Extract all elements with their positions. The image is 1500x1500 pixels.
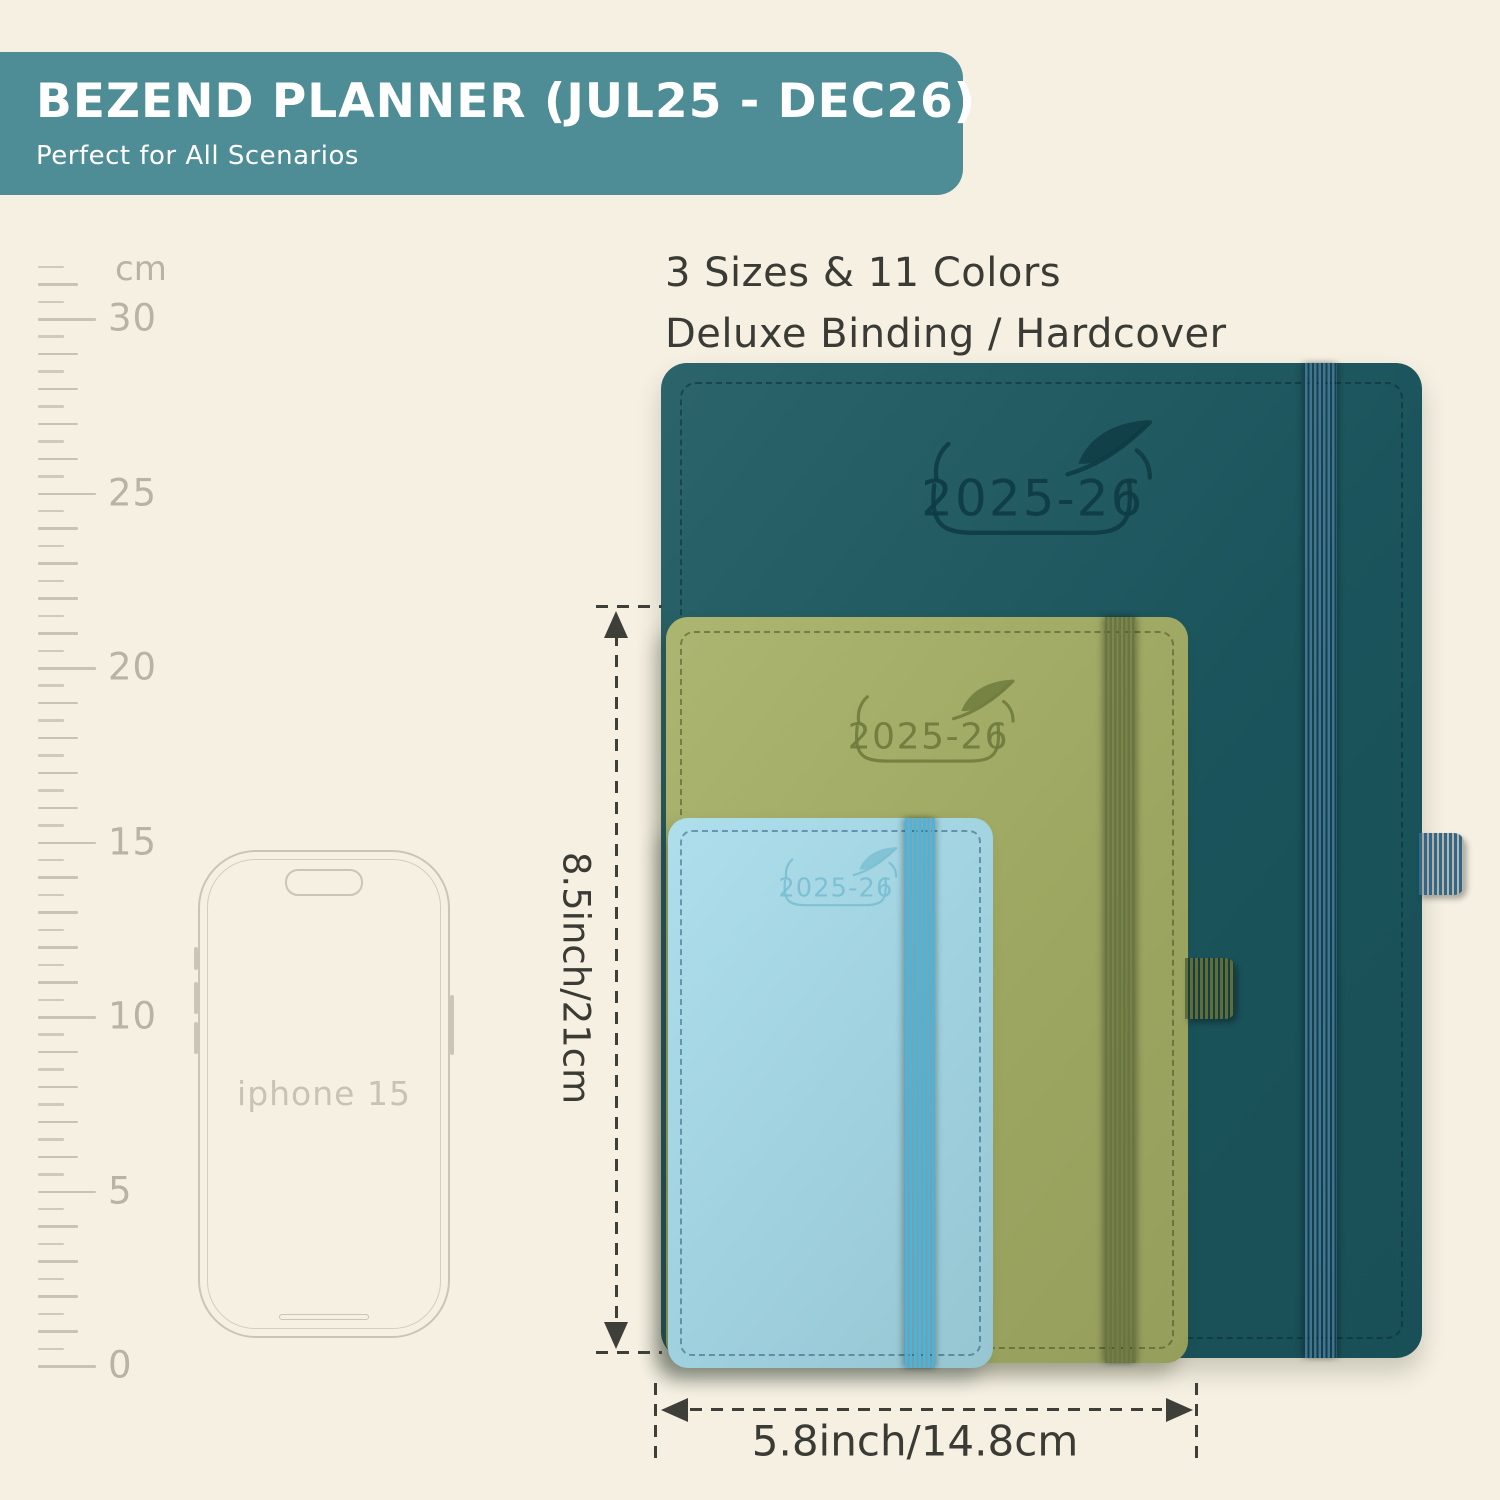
ruler-tick bbox=[38, 423, 78, 426]
ruler-tick bbox=[38, 1121, 78, 1124]
ruler-tick bbox=[38, 1051, 78, 1054]
year-logo: 2025-26 bbox=[770, 846, 904, 913]
pen-loop bbox=[1419, 833, 1464, 895]
width-dim-label: 5.8inch/14.8cm bbox=[752, 1417, 1078, 1466]
ruler-tick bbox=[38, 1278, 64, 1281]
pen-loop bbox=[1185, 958, 1235, 1019]
ruler-tick bbox=[38, 754, 64, 757]
ruler-tick bbox=[38, 632, 78, 635]
ruler-tick bbox=[38, 545, 64, 548]
ruler-tick bbox=[38, 946, 78, 949]
volume-button-icon bbox=[194, 1022, 198, 1054]
ruler-tick bbox=[38, 1330, 78, 1333]
planner-small: 2025-26 bbox=[668, 818, 993, 1368]
headline: 3 Sizes & 11 Colors Deluxe Binding / Har… bbox=[665, 243, 1227, 365]
ruler-tick bbox=[38, 283, 78, 286]
iphone-label: iphone 15 bbox=[200, 1074, 448, 1113]
ruler-tick bbox=[38, 1086, 78, 1089]
ruler-tick bbox=[38, 493, 96, 496]
svg-text:2025-26: 2025-26 bbox=[848, 717, 1009, 758]
svg-text:2025-26: 2025-26 bbox=[921, 470, 1144, 528]
elastic-band bbox=[905, 818, 935, 1368]
ruler-tick bbox=[38, 1243, 64, 1246]
ruler-tick bbox=[38, 999, 64, 1002]
ruler-tick bbox=[38, 1033, 64, 1036]
ruler-number: 5 bbox=[108, 1169, 133, 1212]
volume-button-icon bbox=[194, 947, 198, 970]
iphone-outline: iphone 15 bbox=[198, 850, 450, 1338]
ruler-tick bbox=[38, 911, 78, 914]
headline-line2: Deluxe Binding / Hardcover bbox=[665, 304, 1227, 365]
width-dim-line bbox=[690, 1408, 1162, 1411]
ruler-tick bbox=[38, 807, 78, 810]
ruler-tick bbox=[38, 1103, 64, 1106]
ruler-tick bbox=[38, 1068, 64, 1071]
ruler-number: 0 bbox=[108, 1344, 133, 1387]
ruler-tick bbox=[38, 1191, 96, 1194]
arrow-left-icon bbox=[661, 1398, 688, 1422]
year-logo: 2025-26 bbox=[905, 418, 1165, 548]
ruler-tick bbox=[38, 388, 78, 391]
ruler-tick bbox=[38, 318, 96, 321]
elastic-band bbox=[1105, 617, 1136, 1363]
arrow-right-icon bbox=[1166, 1398, 1193, 1422]
speaker-icon bbox=[279, 1314, 369, 1320]
ruler-tick bbox=[38, 440, 64, 443]
ruler-tick bbox=[38, 615, 64, 618]
ruler-tick bbox=[38, 370, 64, 373]
height-dim-line bbox=[615, 634, 618, 1326]
width-dim-tick-right bbox=[1195, 1383, 1198, 1463]
ruler-tick bbox=[38, 772, 78, 775]
ruler-tick bbox=[38, 684, 64, 687]
ruler-unit-label: cm bbox=[115, 249, 167, 289]
ruler-tick bbox=[38, 894, 64, 897]
width-dim-tick-left bbox=[654, 1383, 657, 1463]
ruler-tick bbox=[38, 1260, 78, 1263]
ruler-tick bbox=[38, 266, 64, 269]
year-logo: 2025-26 bbox=[836, 678, 1024, 772]
ruler-tick bbox=[38, 353, 78, 356]
ruler-tick bbox=[38, 789, 64, 792]
ruler-number: 15 bbox=[108, 820, 157, 863]
ruler-tick bbox=[38, 1225, 78, 1228]
ruler-tick bbox=[38, 510, 64, 513]
volume-button-icon bbox=[194, 982, 198, 1014]
ruler-tick bbox=[38, 527, 78, 530]
ruler-tick bbox=[38, 580, 64, 583]
ruler-tick bbox=[38, 824, 64, 827]
ruler-tick bbox=[38, 1348, 64, 1351]
ruler-tick bbox=[38, 1016, 96, 1019]
ruler-tick bbox=[38, 562, 78, 565]
ruler-number: 20 bbox=[108, 646, 157, 689]
ruler-tick bbox=[38, 702, 78, 705]
dynamic-island-icon bbox=[285, 869, 363, 896]
feather-icon bbox=[1078, 420, 1150, 464]
ruler-tick bbox=[38, 597, 78, 600]
ruler-tick bbox=[38, 1173, 64, 1176]
ruler-tick bbox=[38, 859, 64, 862]
ruler-tick bbox=[38, 842, 96, 845]
product-infographic: BEZEND PLANNER (JUL25 - DEC26) Perfect f… bbox=[0, 0, 1500, 1500]
ruler-tick bbox=[38, 929, 64, 932]
ruler-number: 30 bbox=[108, 297, 157, 340]
ruler-number: 10 bbox=[108, 995, 157, 1038]
ruler-tick bbox=[38, 1365, 96, 1368]
ruler-tick bbox=[38, 876, 78, 879]
ruler-tick bbox=[38, 335, 64, 338]
ruler-tick bbox=[38, 458, 78, 461]
svg-text:2025-26: 2025-26 bbox=[778, 873, 893, 903]
ruler-tick bbox=[38, 737, 78, 740]
power-button-icon bbox=[450, 995, 454, 1055]
arrow-up-icon bbox=[604, 611, 628, 638]
ruler-tick bbox=[38, 964, 64, 967]
ruler-tick bbox=[38, 650, 64, 653]
ruler-tick bbox=[38, 1138, 64, 1141]
ruler-tick bbox=[38, 301, 64, 304]
feather-icon bbox=[859, 847, 896, 870]
elastic-band bbox=[1305, 363, 1337, 1358]
ruler-tick bbox=[38, 1313, 64, 1316]
ruler-tick bbox=[38, 719, 64, 722]
ruler-tick bbox=[38, 1295, 78, 1298]
ruler-tick bbox=[38, 475, 64, 478]
height-dim-label: 8.5inch/21cm bbox=[555, 852, 598, 1104]
headline-line1: 3 Sizes & 11 Colors bbox=[665, 243, 1227, 304]
ruler-tick bbox=[38, 1156, 78, 1159]
height-dim-tick-top bbox=[596, 605, 662, 608]
ruler-tick bbox=[38, 667, 96, 670]
ruler-tick bbox=[38, 405, 64, 408]
arrow-down-icon bbox=[604, 1322, 628, 1349]
ruler-number: 25 bbox=[108, 471, 157, 514]
ruler-tick bbox=[38, 981, 78, 984]
ruler-tick bbox=[38, 1208, 64, 1211]
feather-icon bbox=[961, 680, 1013, 712]
height-dim-tick-bottom bbox=[596, 1351, 662, 1354]
